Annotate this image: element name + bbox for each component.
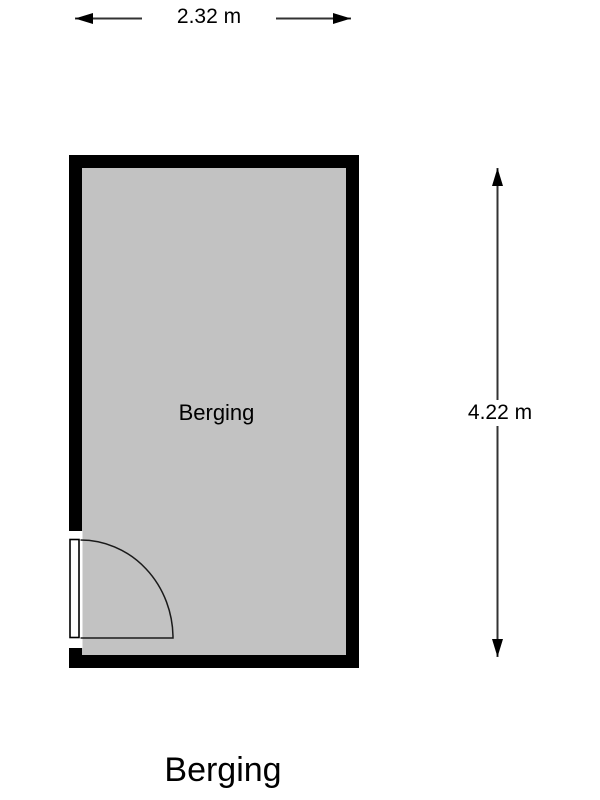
arrow-down-icon	[492, 639, 503, 657]
arrow-left-icon	[75, 13, 93, 24]
height-dimension-label: 4.22 m	[443, 400, 557, 426]
arrow-up-icon	[492, 168, 503, 186]
arrow-right-icon	[333, 13, 351, 24]
floorplan-title: Berging	[113, 750, 333, 790]
room-name-label: Berging	[146, 400, 287, 426]
width-dimension-label: 2.32 m	[142, 4, 276, 30]
door-leaf	[70, 540, 79, 638]
floorplan-canvas: 2.32 m 4.22 m Berging Berging	[0, 0, 600, 800]
